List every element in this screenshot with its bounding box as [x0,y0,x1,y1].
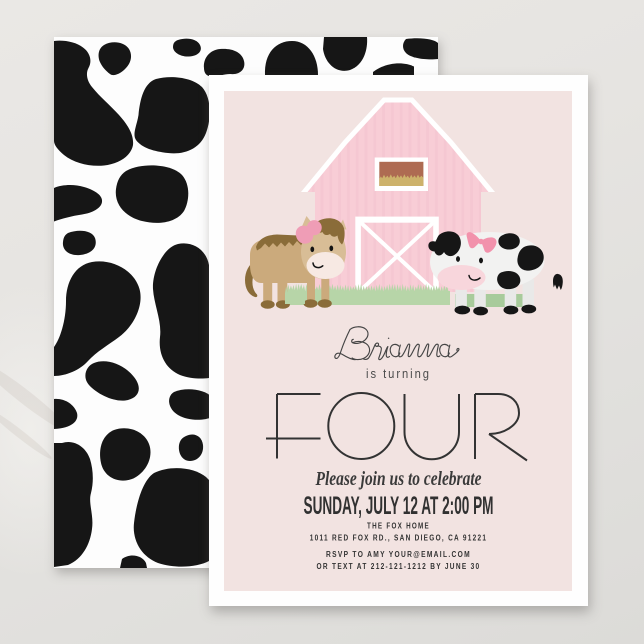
svg-text:OR TEXT AT 212-121-1212 BY JUN: OR TEXT AT 212-121-1212 BY JUNE 30 [317,562,481,571]
svg-text:RSVP TO AMY YOUR@EMAIL.COM: RSVP TO AMY YOUR@EMAIL.COM [326,550,471,559]
svg-text:1011 RED FOX RD., SAN DIEGO, C: 1011 RED FOX RD., SAN DIEGO, CA 91221 [310,534,488,543]
svg-text:THE FOX HOME: THE FOX HOME [367,522,430,531]
svg-text:SUNDAY, JULY 12 AT 2:00 PM: SUNDAY, JULY 12 AT 2:00 PM [304,492,494,520]
svg-text:Please join us to celebrate: Please join us to celebrate [315,468,482,490]
svg-text:is turning: is turning [366,367,431,381]
